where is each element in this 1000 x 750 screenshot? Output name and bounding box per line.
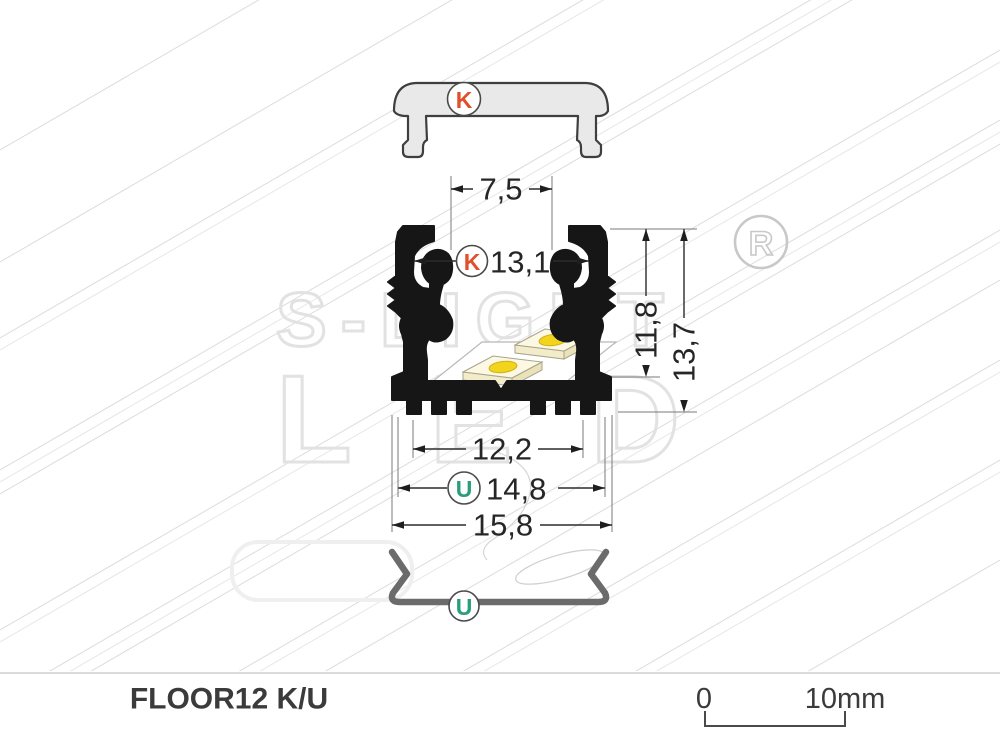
scale-bar: 0 10mm — [696, 683, 885, 726]
u-badge-label: U — [456, 594, 473, 620]
dimension-top-width: 7,5 — [451, 172, 552, 251]
footer: FLOOR12 K/U 0 10mm — [0, 673, 1000, 726]
ghost-sketch-shape — [232, 542, 412, 600]
dimension-label: 7,5 — [479, 172, 522, 207]
product-title: FLOOR12 K/U — [130, 683, 328, 716]
sketch-line — [0, 0, 1000, 262]
arrowhead-left — [392, 521, 404, 529]
cover-profile-drawing: K — [394, 83, 608, 158]
dimension-base-width: 15,8 — [392, 508, 612, 543]
scale-start-label: 0 — [696, 683, 712, 715]
cover-profile-shape — [394, 83, 608, 157]
arrowhead-up — [642, 229, 650, 241]
u-badge-label: U — [456, 476, 473, 502]
arrowhead-left — [414, 257, 426, 265]
arrowhead-right — [540, 185, 552, 193]
drawing-page: { "footer": { "title": "FLOOR12 K/U", "s… — [0, 0, 1000, 750]
arrowhead-right — [577, 257, 589, 265]
registered-mark-letter: R — [749, 225, 774, 263]
arrowhead-left — [451, 185, 463, 193]
dimension-label: 11,8 — [629, 301, 664, 359]
k-badge-label: K — [464, 249, 481, 275]
mounting-profile-shape — [392, 552, 606, 602]
technical-drawing-canvas: S-LIGHT LED R K 7,5 — [0, 0, 1000, 750]
dimension-label: 13,7 — [667, 322, 702, 382]
arrowhead-right — [600, 521, 612, 529]
mounting-profile-drawing: U — [392, 552, 606, 621]
sketch-line — [0, 560, 1000, 750]
registered-mark: R — [735, 216, 787, 268]
scale-end-label: 10mm — [805, 683, 886, 715]
sketch-line — [0, 0, 1000, 150]
k-badge-label: K — [456, 87, 473, 113]
dimension-label: 14,8 — [486, 472, 546, 507]
dimension-label: 12,2 — [472, 432, 532, 467]
dimension-label: 13,1 — [490, 245, 550, 280]
dimension-label: 15,8 — [473, 508, 533, 543]
